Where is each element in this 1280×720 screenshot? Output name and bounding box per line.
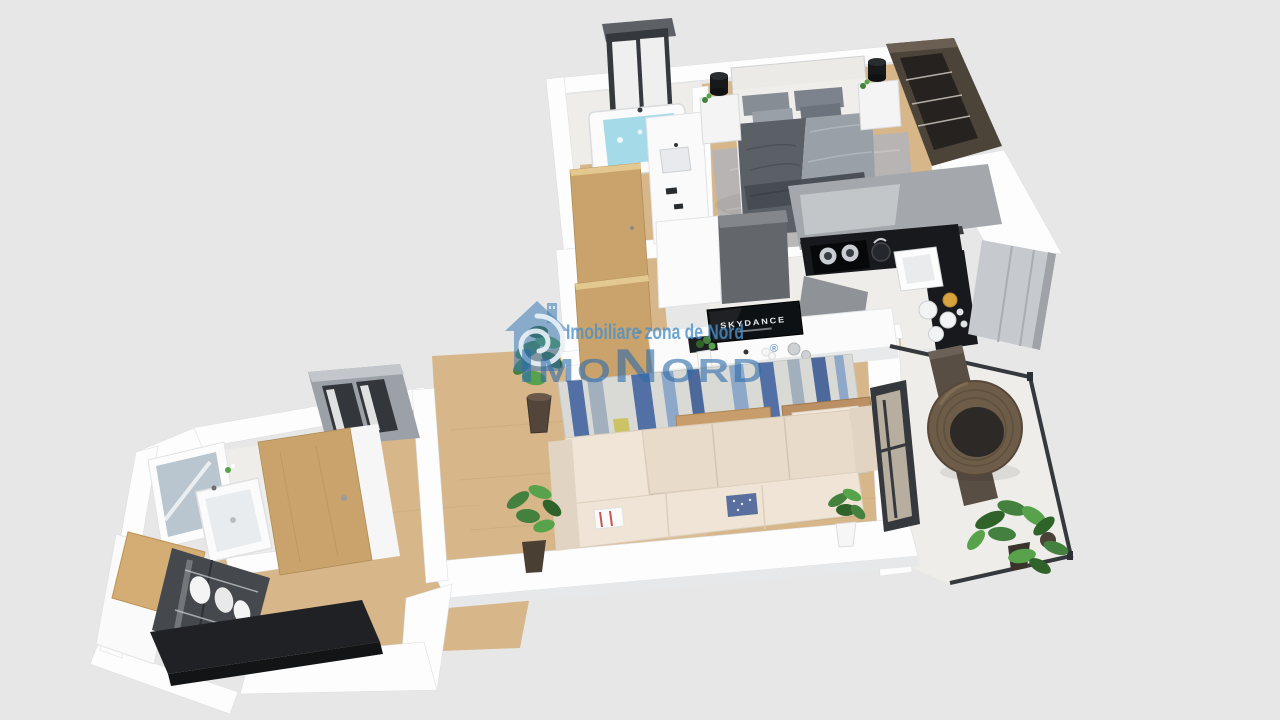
- tall-cabinet-white: [656, 216, 721, 308]
- glass: [961, 321, 968, 328]
- shower-drain: [230, 517, 236, 523]
- decor-sphere: [788, 343, 800, 355]
- plate: [940, 312, 956, 328]
- door-handle: [630, 226, 634, 230]
- pillow-dot: [741, 503, 743, 505]
- wooden-door-panel: [570, 163, 648, 284]
- plant-pot-rim: [527, 393, 551, 401]
- watermark-registered-mark: ®: [770, 343, 778, 355]
- plant-pot-white: [836, 522, 856, 547]
- railing-post: [1027, 372, 1033, 381]
- nightstand-plant: [702, 97, 708, 103]
- nightstand-plant: [707, 94, 712, 99]
- plant-pot: [522, 540, 546, 573]
- stove: [810, 240, 870, 274]
- plant-pot: [527, 396, 551, 433]
- stove-burner: [846, 249, 854, 257]
- toiletry-item: [674, 203, 683, 209]
- vanity-sink: [660, 147, 691, 173]
- flower-sprig: [231, 464, 235, 468]
- water-foam: [617, 137, 623, 143]
- logo-chimney-mark: [553, 306, 555, 309]
- chair-cushion: [950, 407, 1004, 457]
- water-foam: [638, 130, 643, 135]
- watermark-brand: ImoNord: [518, 339, 766, 392]
- stove-burner: [824, 252, 832, 260]
- table-lamp-top: [710, 72, 728, 80]
- bathtub-faucet: [638, 108, 643, 113]
- plate: [919, 301, 937, 319]
- table-lamp-top: [868, 58, 886, 66]
- plate: [929, 327, 944, 342]
- logo-chimney-mark: [549, 306, 551, 309]
- sink-faucet: [674, 143, 678, 147]
- flower-sprig: [222, 464, 226, 468]
- floorplan-render: SKYDANCE: [0, 0, 1280, 720]
- table-lamp-base: [868, 74, 886, 82]
- window-pane: [612, 40, 640, 114]
- shower-faucet: [212, 486, 217, 491]
- sink-basin-inner: [902, 254, 935, 284]
- nightstand-plant: [865, 80, 870, 85]
- table-lamp-base: [710, 88, 728, 96]
- flower-sprig: [225, 467, 231, 473]
- kitchen-sink-round: [872, 243, 890, 261]
- glass: [957, 309, 964, 316]
- pillow-dot: [733, 500, 735, 502]
- door-handle: [341, 495, 347, 501]
- nightstand-plant: [860, 83, 866, 89]
- gold-bowl: [943, 293, 957, 307]
- toiletry-item: [666, 187, 678, 194]
- pillow-dot: [737, 509, 739, 511]
- window-pane: [640, 37, 668, 111]
- floorplan-screenshot: SKYDANCE: [0, 0, 1280, 720]
- pillow-dot: [749, 499, 751, 501]
- sofa-pillow-white: [594, 507, 624, 529]
